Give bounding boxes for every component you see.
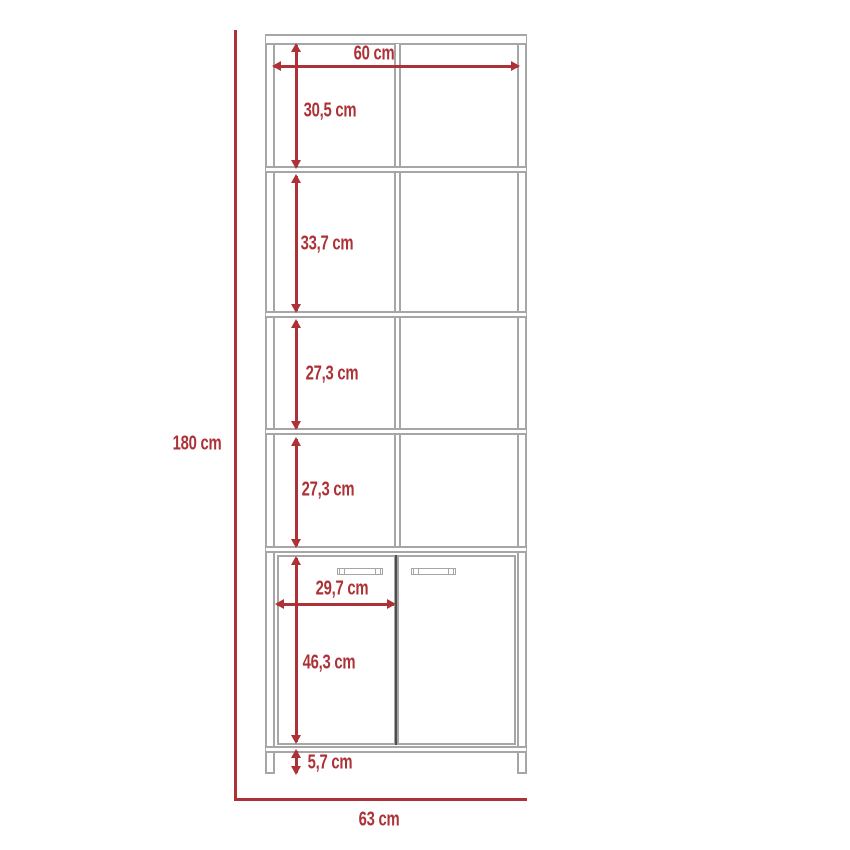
- dim-line-section-3: [291, 319, 302, 430]
- arrowhead-up-icon: [291, 174, 301, 183]
- arrowhead-down-icon: [291, 766, 301, 775]
- total-height-extension-line: [234, 30, 237, 800]
- handle-endcap: [448, 568, 454, 575]
- arrowhead-up-icon: [291, 749, 301, 758]
- arrowhead-up-icon: [291, 43, 301, 52]
- total-width-extension-line: [234, 798, 527, 801]
- dim-line-door-height: [291, 556, 302, 744]
- dim-label-door-height: 46,3 cm: [303, 652, 356, 675]
- dim-label-plinth: 5,7 cm: [308, 752, 353, 775]
- dim-label-base-width: 63 cm: [359, 809, 400, 832]
- dim-label-section-3: 27,3 cm: [306, 363, 359, 386]
- dim-label-section-1: 30,5 cm: [304, 100, 357, 123]
- arrowhead-right-icon: [387, 599, 396, 609]
- arrowhead-up-icon: [291, 319, 301, 328]
- arrowhead-left-icon: [275, 599, 284, 609]
- shelf-4: [266, 546, 526, 553]
- handle-endcap: [339, 568, 345, 575]
- dim-label-door-width: 29,7 cm: [316, 578, 369, 601]
- dim-line: [295, 558, 298, 742]
- dim-line-top-width: [272, 61, 520, 72]
- shelf-2: [266, 311, 526, 318]
- diagram-canvas: 180 cm 60 cm 30,5 cm 33,7 cm 27,3 cm 27,…: [0, 0, 850, 850]
- dim-label-total-height: 180 cm: [173, 433, 222, 456]
- dim-line-plinth-height: [291, 749, 302, 775]
- dim-line: [295, 439, 298, 546]
- arrowhead-down-icon: [291, 160, 301, 169]
- dim-label-section-2: 33,7 cm: [301, 233, 354, 256]
- shelf-1: [266, 166, 526, 173]
- dim-label-section-4: 27,3 cm: [302, 479, 355, 502]
- cabinet-bottom-rail: [266, 746, 526, 753]
- dim-line: [295, 45, 298, 167]
- arrowhead-down-icon: [291, 539, 301, 548]
- cabinet-right-door: [397, 555, 516, 745]
- door-gap-line: [395, 555, 397, 745]
- arrowhead-down-icon: [291, 304, 301, 313]
- dim-line-section-4: [291, 437, 302, 548]
- dim-line-section-1: [291, 43, 302, 169]
- arrowhead-right-icon: [511, 61, 520, 71]
- dim-line: [295, 176, 298, 311]
- dim-line: [274, 65, 518, 68]
- cabinet-right-upright: [517, 34, 527, 774]
- right-door-handle: [411, 568, 456, 575]
- arrowhead-up-icon: [291, 556, 301, 565]
- arrowhead-up-icon: [291, 437, 301, 446]
- cabinet-left-upright: [265, 34, 275, 774]
- dim-line: [295, 321, 298, 428]
- handle-endcap: [413, 568, 419, 575]
- handle-endcap: [375, 568, 381, 575]
- arrowhead-left-icon: [272, 61, 281, 71]
- shelf-3: [266, 428, 526, 435]
- dim-line-door-width: [275, 599, 396, 610]
- dim-label-top-width: 60 cm: [354, 43, 395, 66]
- arrowhead-down-icon: [291, 421, 301, 430]
- arrowhead-down-icon: [291, 735, 301, 744]
- dim-line: [277, 603, 394, 606]
- cabinet-center-divider: [394, 44, 401, 550]
- left-door-handle: [337, 568, 383, 575]
